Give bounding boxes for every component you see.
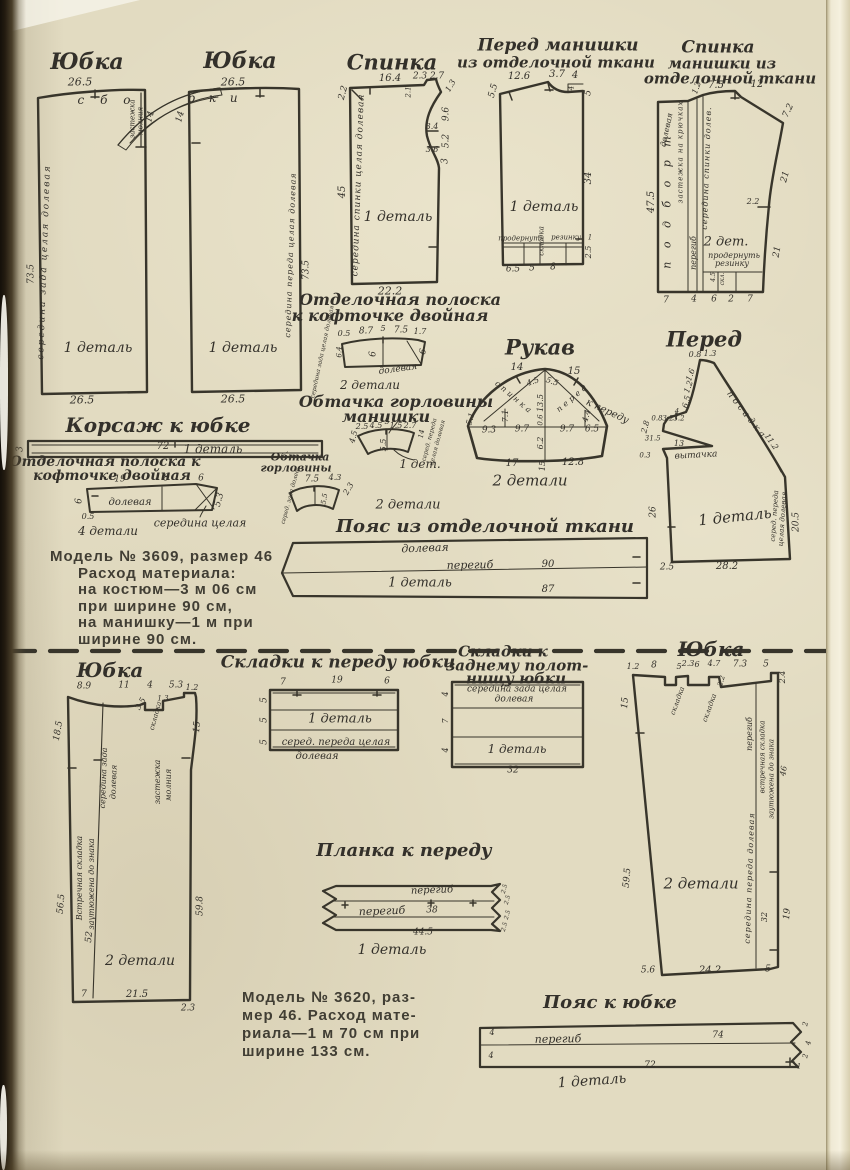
pattern-label: 2.3 <box>413 73 427 82</box>
pattern-label: 12.6 <box>508 72 530 82</box>
pattern-label: 6 <box>198 475 204 484</box>
pattern-label: 26 <box>650 506 659 517</box>
pattern-label: 0.5 <box>82 513 95 521</box>
pattern-label: 2 детали <box>492 474 567 489</box>
pattern-label: 1 деталь <box>510 200 579 214</box>
title-dickey-front: Перед манишки <box>477 38 638 55</box>
pattern-label: 3.6 <box>426 146 439 154</box>
pattern-label: 8.7 <box>359 328 373 337</box>
title-front-placket: Планка к переду <box>316 842 491 860</box>
pattern-label: 59.5 <box>623 868 634 889</box>
pattern-label: 4 <box>442 747 450 752</box>
pattern-label: 2 <box>728 296 734 305</box>
pattern-label: застежка на крючках <box>678 101 685 204</box>
model-3609-line: при ширине 90 см, <box>78 599 273 616</box>
pattern-label: 45 <box>338 186 348 199</box>
pattern-label: 38 <box>426 907 437 916</box>
pattern-label: застежка <box>130 99 137 138</box>
pattern-label: 5 <box>380 325 385 333</box>
pattern-label: 6.4 <box>337 346 344 357</box>
pattern-label: 47.5 <box>647 191 657 213</box>
pattern-label: 7 <box>747 296 753 305</box>
pattern-label: 6 <box>384 678 390 687</box>
pattern-label: 2.5 <box>585 246 593 259</box>
pattern-label: 1 дет. <box>399 458 440 470</box>
pattern-label: 2 <box>802 1021 810 1027</box>
pattern-label: перегиб <box>447 559 494 571</box>
pattern-label: 1 деталь <box>209 341 278 355</box>
title-skirt-2-back: Юбка <box>77 660 144 680</box>
pattern-label: р к и <box>187 92 242 104</box>
pattern-label: 26.5 <box>68 77 93 88</box>
pattern-label: резинку <box>715 260 749 268</box>
pattern-label: серед. переда целая <box>282 738 391 748</box>
pattern-label: 1 деталь <box>388 577 452 590</box>
pattern-label: 12 <box>751 80 764 90</box>
pattern-label: долевая <box>295 752 338 762</box>
pattern-label: перегиб <box>535 1033 582 1045</box>
pattern-label: 3 <box>442 158 451 164</box>
pattern-label: 1 деталь <box>364 210 433 224</box>
pattern-label: 5 <box>529 265 535 274</box>
title-trim-strip-2: Отделочная полоска к <box>9 455 200 469</box>
pattern-label: 1 деталь <box>184 443 243 455</box>
pattern-label: 3.2 <box>662 416 673 423</box>
trim-strip-2-inner <box>162 484 217 517</box>
pattern-label: 1.7 <box>414 328 427 336</box>
pattern-label: долевая <box>495 696 534 705</box>
pattern-label: 24.2 <box>699 966 721 976</box>
pattern-label: 9.3 <box>482 427 496 436</box>
pattern-label: 11 <box>118 682 129 691</box>
pattern-label: 7 <box>81 991 87 1000</box>
pattern-label: 0.8 <box>689 351 702 359</box>
pattern-label: 7 <box>663 297 669 306</box>
pattern-label: 7.5 <box>708 81 724 91</box>
model-3620-line: ширине 133 см. <box>242 1043 420 1061</box>
pattern-label: 26.5 <box>70 395 95 406</box>
bottom-page-shadow <box>0 1150 850 1170</box>
pattern-label: 5 <box>765 966 771 975</box>
pattern-label: долевая <box>109 765 118 800</box>
pattern-label: перегиб <box>359 905 406 918</box>
title-skirt-2-front: Юбка <box>678 639 745 659</box>
pattern-label: 22.2 <box>378 286 403 297</box>
pattern-label: 2.1 <box>406 86 413 97</box>
pattern-label: 21.5 <box>126 990 148 1000</box>
pattern-label: долевая <box>401 542 449 555</box>
model-3609-line: на манишку—1 м при <box>78 615 273 632</box>
pattern-label: 87 <box>542 585 555 595</box>
pattern-label: 32 <box>761 912 769 922</box>
pattern-label: 20.5 <box>793 512 802 532</box>
model-3620-note: Модель № 3620, раз- мер 46. Расход мате-… <box>242 989 420 1061</box>
skirt-belt-fold <box>480 1043 795 1045</box>
pattern-label: 5 <box>261 697 270 703</box>
model-3609-line: Расход материала: <box>78 566 273 583</box>
pattern-label: 2.3 <box>682 660 695 668</box>
pattern-label: 6 <box>711 296 717 305</box>
pattern-label: 15 <box>193 721 203 733</box>
pattern-label: скл. <box>720 273 726 286</box>
pattern-label: 2.2 <box>747 198 760 206</box>
pattern-label: 2.7 <box>404 422 417 430</box>
pattern-label: 4 <box>489 1029 494 1037</box>
pattern-label: 19 <box>114 476 125 485</box>
pattern-label: 14 <box>511 363 524 373</box>
pattern-label: 5 <box>261 717 270 723</box>
pattern-label: 4 <box>805 1040 813 1046</box>
pattern-label: долевая <box>108 498 151 508</box>
pattern-label: 5 <box>763 661 769 670</box>
pattern-label: 6 <box>694 661 699 669</box>
pattern-label: 4 <box>488 1052 493 1060</box>
pattern-label: 5 <box>261 739 270 745</box>
pattern-label: 7.1 <box>502 410 510 423</box>
pattern-label: 8 <box>550 264 556 273</box>
pattern-label: 13.5 <box>537 394 545 412</box>
pattern-label: 1 <box>588 235 592 242</box>
pattern-label: 4.5 <box>370 422 383 430</box>
pattern-label: 1.5 <box>390 422 403 430</box>
pattern-label: 4 <box>442 691 450 696</box>
pattern-label: 44.5 <box>413 929 433 938</box>
pattern-label: 15 <box>539 461 547 471</box>
pattern-label: 2.5 <box>356 423 369 431</box>
pattern-label: Встречная складка <box>76 836 84 920</box>
model-3609-line: Модель № 3609, размер 46 <box>50 549 273 566</box>
pattern-label: 1 деталь <box>64 341 133 355</box>
pattern-label: 6.2 <box>537 437 545 450</box>
pattern-label: 19 <box>331 677 342 686</box>
pattern-label: заутюжена до знака <box>88 838 96 929</box>
title-belt-trim: Пояс из отделочной ткани <box>336 518 634 536</box>
pattern-label: 7.5 <box>394 327 408 336</box>
pattern-label: 52 <box>85 931 95 943</box>
pattern-label: 19 <box>783 908 793 920</box>
pattern-label: 73.5 <box>303 260 312 280</box>
pattern-label: 0.3 <box>639 453 650 460</box>
pattern-label: 2.4 <box>779 671 787 684</box>
pattern-label: 6.5 <box>585 426 599 435</box>
model-3609-line: на костюм—3 м 06 см <box>78 582 273 599</box>
pattern-label: середина зада целая <box>467 686 567 695</box>
pattern-label: 4 детали <box>78 525 138 537</box>
title-skirt-belt: Пояс к юбке <box>543 994 677 1012</box>
pattern-label: 3.4 <box>426 123 439 131</box>
pattern-label: 4.7 <box>708 660 721 668</box>
pattern-label: 5.5 <box>380 439 388 452</box>
pattern-label: 5.6 <box>641 967 655 976</box>
book-binding-shadow <box>0 0 26 1170</box>
pattern-label: 1.2 <box>627 663 640 671</box>
pattern-label: 2.3 <box>181 1005 195 1014</box>
pattern-label: 28.2 <box>716 562 738 572</box>
pattern-label: 15 <box>621 697 631 709</box>
pattern-label: 4 <box>572 71 578 81</box>
model-3620-line: риала—1 м 70 см при <box>242 1025 420 1043</box>
pattern-label: 4.3 <box>329 474 342 482</box>
pattern-label: 2 детали <box>663 877 738 892</box>
pattern-label: середина целая <box>154 518 247 529</box>
pattern-label: молния <box>165 769 173 801</box>
pattern-label: 6 <box>76 498 85 504</box>
pattern-label: 2 детали <box>105 954 175 968</box>
pattern-label: 2 дет. <box>704 236 749 249</box>
title-skirt-corsage: Корсаж к юбке <box>66 415 251 435</box>
pattern-label: 4 <box>691 296 697 305</box>
pattern-label: перегиб <box>411 885 454 896</box>
pattern-label: 3.2 <box>673 416 684 423</box>
scanned-pattern-page: ЮбкаЮбкаСпинкаПеред манишкииз отделочной… <box>0 0 850 1170</box>
pattern-label: 26.5 <box>221 77 246 88</box>
pattern-label: 1 деталь <box>358 943 427 957</box>
pattern-label: 7.5 <box>305 476 319 485</box>
title-skirt-front: Юбка <box>203 50 276 72</box>
pattern-label: 12.8 <box>562 458 584 468</box>
pattern-label: 1.3 <box>704 350 717 358</box>
pattern-label: 16.4 <box>379 74 401 84</box>
pattern-label: 74 <box>712 1032 723 1041</box>
pattern-label: 56.5 <box>57 894 68 915</box>
pattern-label: резинку <box>551 235 581 242</box>
pattern-label: 2 детали <box>340 379 400 391</box>
pattern-label: 0.8 <box>651 416 662 423</box>
title-front: Перед <box>666 329 742 350</box>
model-3620-line: Модель № 3620, раз- <box>242 989 420 1007</box>
pattern-label: п о д б о р т <box>662 131 673 268</box>
pattern-label: 72 <box>644 1062 655 1071</box>
model-3609-line: ширине 90 см. <box>78 632 273 649</box>
pattern-label: 13 <box>674 440 684 448</box>
pattern-label: 34 <box>584 172 594 185</box>
pattern-label: 5.2 <box>443 134 452 148</box>
pattern-label: 0.6 <box>538 414 545 425</box>
pattern-label: 32 <box>507 767 518 776</box>
pattern-label: 15 <box>568 367 581 377</box>
model-3620-line: мер 46. Расход мате- <box>242 1007 420 1025</box>
pattern-label: 73.5 <box>28 264 37 284</box>
pattern-label: 8.9 <box>77 683 91 692</box>
next-page-edge <box>826 0 850 1170</box>
pattern-label: складка <box>539 226 546 256</box>
pattern-label: встречная складка <box>760 721 767 794</box>
title-back: Спинка <box>347 52 437 73</box>
pattern-label: 7 <box>280 679 286 688</box>
pattern-label: 1 <box>797 1064 801 1071</box>
pattern-label: 1 деталь <box>308 713 372 726</box>
pattern-label: 4 <box>147 682 153 691</box>
pattern-label: 2.7 <box>430 73 444 82</box>
pattern-label: 4.5 <box>711 272 717 282</box>
pattern-label: перегиб <box>690 236 698 270</box>
pattern-label: 6 <box>370 351 379 357</box>
title-front-pleats: Складки к переду юбки <box>221 655 455 672</box>
title-skirt-back: Юбка <box>50 51 123 73</box>
model-3609-note: Модель № 3609, размер 46 Расход материал… <box>50 549 273 648</box>
pattern-label: 9.7 <box>560 426 574 435</box>
pattern-label: заутюжена до знака <box>769 739 776 819</box>
pattern-label: к кофточке двойная <box>292 308 489 324</box>
pattern-label: 17 <box>506 459 519 469</box>
page-edge-tear <box>0 295 8 470</box>
title-sleeve: Рукав <box>505 337 575 358</box>
pattern-label: 26.5 <box>221 394 246 405</box>
pattern-label: застежка <box>154 760 162 805</box>
pattern-label: 2 детали <box>375 499 440 512</box>
pattern-label: 8 <box>163 475 169 484</box>
pattern-label: 5.3 <box>169 682 183 691</box>
pattern-label: 7.3 <box>733 661 747 670</box>
pattern-label: 0.5 <box>338 330 351 338</box>
pattern-label: 9.6 <box>443 107 452 121</box>
pattern-label: отделочной ткани <box>644 72 816 87</box>
pattern-label: 6.5 <box>506 266 520 275</box>
pattern-label: 2 <box>802 1053 810 1059</box>
pattern-label: 4 <box>569 86 576 90</box>
pattern-label: 9.7 <box>515 426 529 435</box>
pattern-label: 90 <box>542 560 555 570</box>
pattern-label: 3.7 <box>549 70 565 80</box>
pattern-label: 72 <box>157 442 170 452</box>
pattern-label: 8 <box>651 662 657 671</box>
pattern-label: 59.8 <box>197 896 206 916</box>
pattern-label: 1 деталь <box>488 743 547 755</box>
pattern-label: 4 <box>675 409 679 416</box>
pattern-label: 2.5 <box>660 564 674 573</box>
pattern-label: 1.2 <box>186 684 199 692</box>
pattern-label: перегиб <box>746 717 754 751</box>
pattern-label: 1.5 <box>649 436 660 443</box>
pattern-label: 7 <box>442 718 450 723</box>
